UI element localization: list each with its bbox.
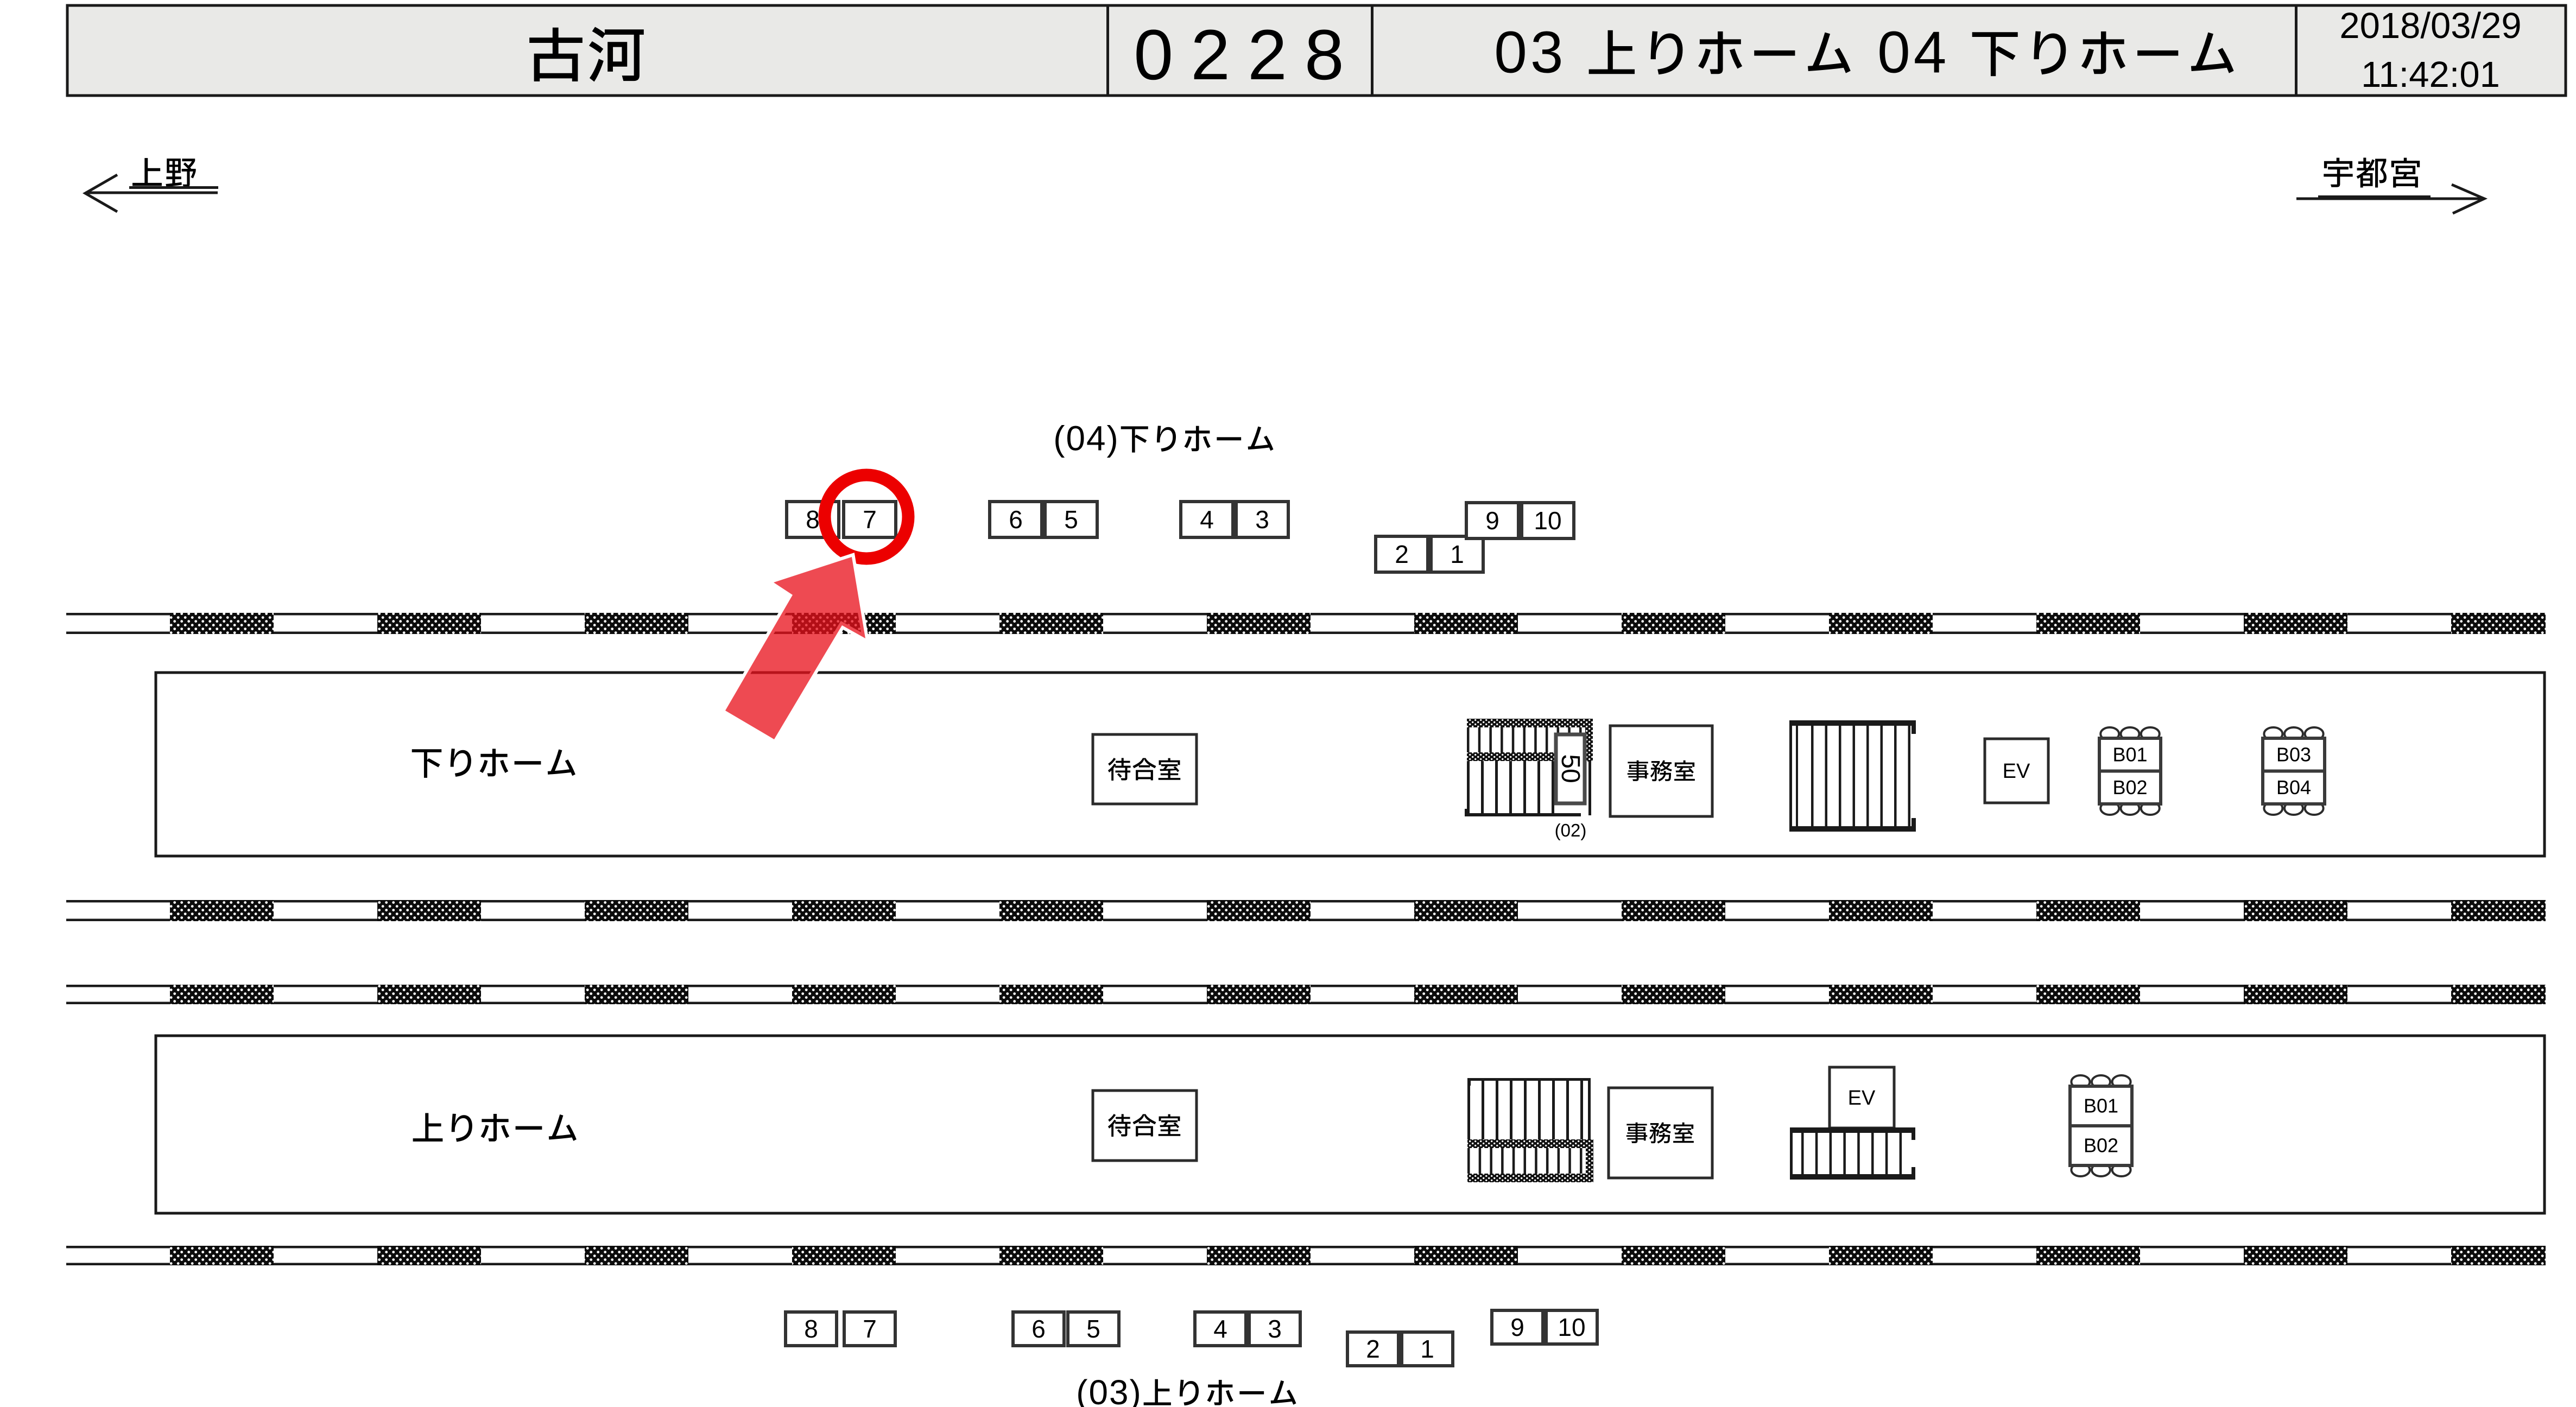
svg-text:8: 8 xyxy=(804,1315,818,1343)
svg-text:EV: EV xyxy=(1848,1087,1876,1110)
svg-text:1: 1 xyxy=(1420,1335,1434,1363)
svg-text:B02: B02 xyxy=(2084,1135,2118,1157)
svg-text:B01: B01 xyxy=(2084,1095,2118,1117)
svg-text:0228: 0228 xyxy=(1134,15,1361,94)
svg-text:9: 9 xyxy=(1485,506,1499,535)
svg-text:5: 5 xyxy=(1086,1315,1100,1343)
svg-text:(02): (02) xyxy=(1555,820,1587,840)
svg-text:5: 5 xyxy=(1064,505,1078,534)
svg-text:4: 4 xyxy=(1213,1315,1227,1343)
svg-text:7: 7 xyxy=(863,505,877,534)
svg-text:3: 3 xyxy=(1268,1315,1282,1343)
svg-text:8: 8 xyxy=(806,505,820,534)
svg-text:11:42:01: 11:42:01 xyxy=(2361,54,2500,95)
svg-text:10: 10 xyxy=(1534,506,1561,535)
svg-text:6: 6 xyxy=(1009,505,1023,534)
svg-text:2018/03/29: 2018/03/29 xyxy=(2339,5,2521,46)
svg-text:04: 04 xyxy=(1858,19,1970,85)
svg-text:4: 4 xyxy=(1200,505,1214,534)
svg-text:6: 6 xyxy=(1031,1315,1046,1343)
svg-text:B02: B02 xyxy=(2112,776,2147,798)
svg-text:2: 2 xyxy=(1395,540,1409,568)
svg-text:(03): (03) xyxy=(1076,1373,1142,1407)
svg-text:50: 50 xyxy=(1556,754,1585,783)
svg-text:7: 7 xyxy=(863,1315,877,1343)
svg-text:B04: B04 xyxy=(2276,776,2311,798)
svg-text:10: 10 xyxy=(1558,1313,1585,1341)
svg-text:1: 1 xyxy=(1450,540,1464,568)
svg-text:EV: EV xyxy=(2003,760,2030,783)
svg-text:3: 3 xyxy=(1255,505,1269,534)
svg-text:2: 2 xyxy=(1366,1335,1380,1363)
svg-text:03: 03 xyxy=(1494,19,1586,85)
svg-text:B01: B01 xyxy=(2112,743,2147,765)
svg-text:B03: B03 xyxy=(2276,743,2311,765)
svg-text:(04): (04) xyxy=(1053,419,1119,458)
svg-text:9: 9 xyxy=(1510,1313,1524,1341)
